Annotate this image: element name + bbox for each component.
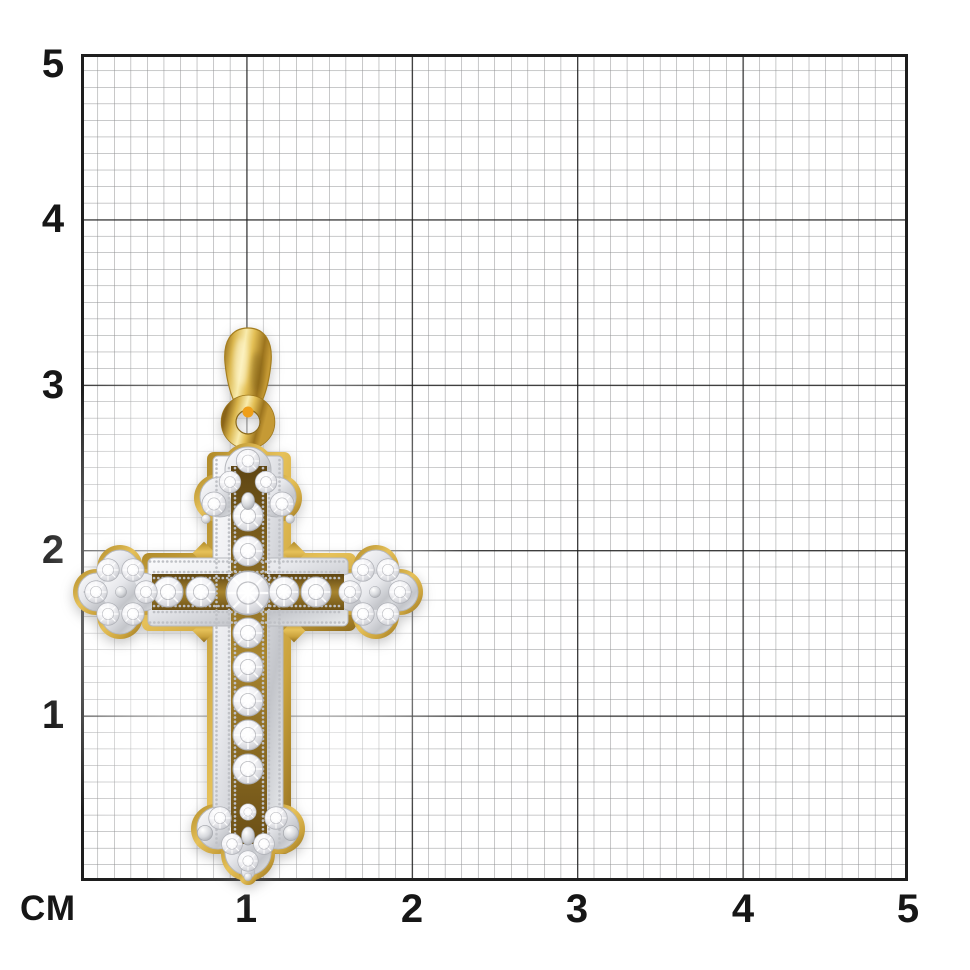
pendant-ring xyxy=(222,396,275,449)
measurement-photo-stage: 5 4 3 2 1 СМ 1 2 3 4 5 xyxy=(0,0,970,970)
gold-diamond-cross-pendant-image xyxy=(0,0,970,970)
ring-glint xyxy=(243,407,254,418)
diamond-stones xyxy=(85,449,412,871)
pendant-bail xyxy=(225,328,272,405)
